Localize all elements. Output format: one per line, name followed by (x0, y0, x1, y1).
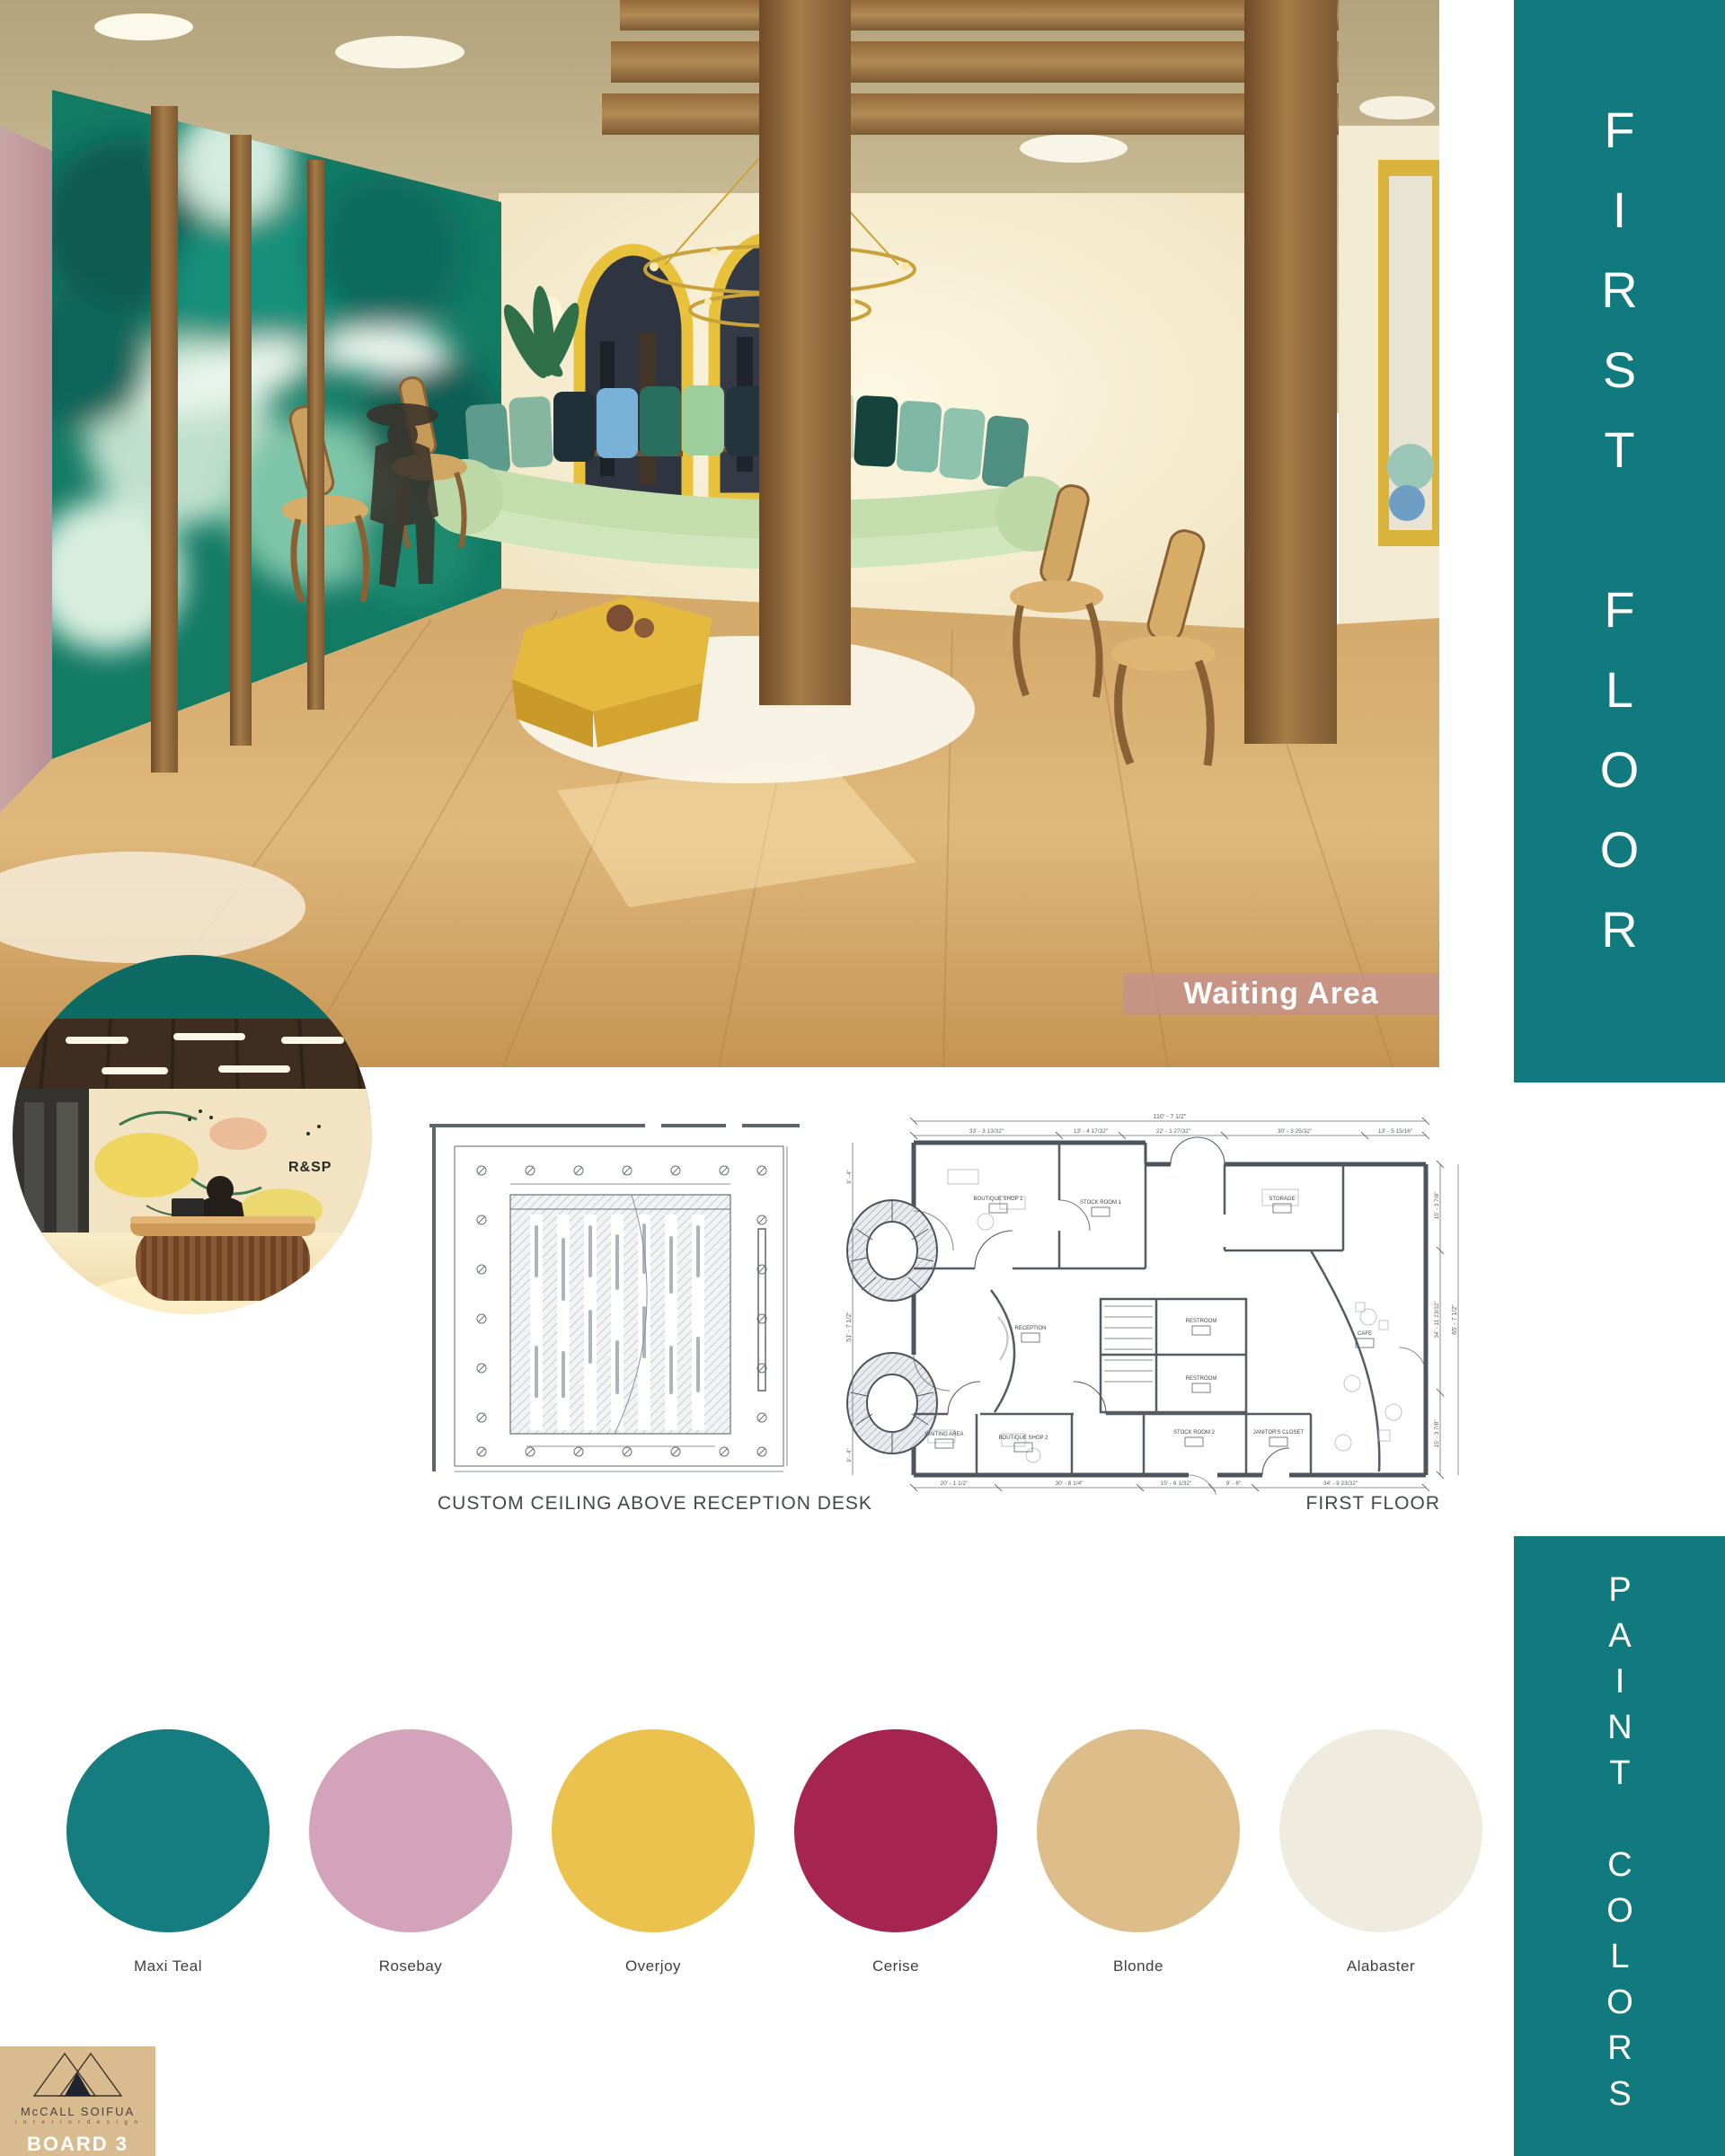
downlight-slash (526, 1167, 534, 1174)
dim-right-overall: 65' - 7 1/2" (1452, 1304, 1458, 1335)
firm-subtitle: i n t e r i o r d e s i g n (0, 2120, 155, 2125)
room-label: BOUTIQUE SHOP 1 (974, 1197, 1024, 1202)
ceiling-plan-drawing (429, 1121, 800, 1479)
reception-inset-photo: R&SP (12, 954, 373, 1315)
plan-doors (914, 1137, 1426, 1495)
dim-right-segment: 15' - 3 7/8" (1434, 1419, 1440, 1448)
room-number-box (1269, 1437, 1287, 1446)
room-number-box (1192, 1383, 1210, 1392)
room-label: CAFE (1358, 1331, 1372, 1337)
waiting-area-scene (0, 0, 1439, 1067)
downlight-slash (478, 1315, 485, 1322)
paint-swatch-rosebay: Rosebay (309, 1729, 512, 1975)
dim-left-small: 9' - 4" (847, 1170, 853, 1183)
room-label: JANITOR'S CLOSET (1253, 1430, 1305, 1436)
room-label: RESTROOM (1186, 1376, 1217, 1382)
paint-swatch-label: Alabaster (1279, 1957, 1482, 1975)
dim-top-segment: 13' - 5 15/16" (1378, 1128, 1413, 1135)
downlight-slash (575, 1448, 582, 1455)
pink-wall (0, 126, 52, 813)
paint-swatch-circle (1279, 1729, 1482, 1932)
gold-framed-mirror (1378, 160, 1439, 546)
banner-paint-colors-label: PAINT COLORS (1600, 1571, 1639, 2121)
downlight-slash (478, 1365, 485, 1372)
plan-dimension-labels: 110' - 7 1/2"33' - 3 13/32"13' - 4 17/32… (846, 1114, 1458, 1487)
downlight-slash (672, 1167, 679, 1174)
dim-right-segment: 15' - 3 7/8" (1434, 1191, 1440, 1220)
banner-first-floor: FIRST FLOOR (1514, 0, 1725, 1082)
room-label: STOCK ROOM 2 (1173, 1430, 1216, 1436)
board-number: BOARD 3 (0, 2133, 155, 2156)
downlight-slash (478, 1448, 485, 1455)
floor-plan-caption: FIRST FLOOR (1253, 1493, 1440, 1515)
paint-swatch-alabaster: Alabaster (1279, 1729, 1482, 1975)
room-number-box (1192, 1326, 1210, 1335)
room-label: BOUTIQUE SHOP 2 (999, 1436, 1049, 1441)
ceiling-plan-svg (429, 1121, 800, 1479)
mountain-logo-icon (0, 2046, 155, 2099)
room-number-box (1185, 1437, 1203, 1446)
downlight-slash (758, 1448, 765, 1455)
paint-swatch-maxi-teal: Maxi Teal (66, 1729, 270, 1975)
dim-top-segment: 13' - 4 17/32" (1074, 1128, 1109, 1135)
paint-swatch-blonde: Blonde (1037, 1729, 1240, 1975)
ceiling-light (335, 36, 464, 68)
room-label: RECEPTION (1014, 1326, 1046, 1331)
downlight-slash (758, 1266, 765, 1273)
ceiling-drawing-caption: CUSTOM CEILING ABOVE RECEPTION DESK (438, 1493, 872, 1515)
room-label: STORAGE (1269, 1197, 1295, 1202)
dim-bottom-segment: 30' - 8 1/4" (1055, 1480, 1084, 1487)
downlight-slash (721, 1167, 728, 1174)
paint-swatch-label: Cerise (794, 1957, 997, 1975)
downlight-slash (758, 1365, 765, 1372)
dim-bottom-segment: 15' - 6 1/32" (1161, 1480, 1192, 1487)
core-stairs (1104, 1306, 1153, 1382)
dim-bottom-segment: 34' - 9 23/32" (1323, 1480, 1358, 1487)
downlight-slash (624, 1167, 631, 1174)
paint-swatch-circle (309, 1729, 512, 1932)
paint-swatch-circle (794, 1729, 997, 1932)
first-floor-plan-drawing: 110' - 7 1/2"33' - 3 13/32"13' - 4 17/32… (840, 1114, 1496, 1495)
paint-swatch-label: Overjoy (552, 1957, 755, 1975)
room-number-box (1022, 1333, 1039, 1342)
ceiling-light (1020, 134, 1128, 163)
paint-swatch-circle (552, 1729, 755, 1932)
dim-left-small: 9' - 4" (847, 1448, 853, 1462)
dim-bottom-segment: 9' - 6" (1226, 1480, 1242, 1487)
banner-paint-colors: PAINT COLORS (1514, 1536, 1725, 2156)
downlight-slash (575, 1167, 582, 1174)
waiting-area-rendering: Waiting Area (0, 0, 1439, 1067)
reception-inset-scene: R&SP (12, 954, 373, 1315)
downlight-slash (758, 1414, 765, 1421)
arched-window (579, 250, 687, 503)
room-number-box (989, 1204, 1007, 1213)
downlight-slash (758, 1216, 765, 1224)
paint-swatch-label: Blonde (1037, 1957, 1240, 1975)
paint-swatch-label: Rosebay (309, 1957, 512, 1975)
downlight-slash (526, 1448, 534, 1455)
inset-reception-desk (130, 1216, 315, 1301)
wood-post (151, 106, 178, 773)
room-number-box (1014, 1443, 1032, 1452)
downlight-slash (478, 1216, 485, 1224)
room-number-box (935, 1439, 953, 1448)
downlight-slash (758, 1315, 765, 1322)
dim-bottom-segment: 20' - 1 1/2" (940, 1480, 969, 1487)
presentation-board: Waiting Area FIRST FLOOR PAINT COLORS (0, 0, 1725, 2156)
slat-ceiling (510, 1195, 730, 1434)
dim-top-segment: 33' - 3 13/32" (969, 1128, 1004, 1135)
dim-right-segment: 34' - 11 23/32" (1434, 1301, 1440, 1339)
downlight-slash (624, 1448, 631, 1455)
room-label: WAITING AREA (924, 1432, 963, 1437)
plan-outer-walls (914, 1143, 1426, 1475)
downlight-slash (478, 1414, 485, 1421)
paint-swatch-label: Maxi Teal (66, 1957, 270, 1975)
ceiling-light (1359, 96, 1435, 119)
ceiling-light (94, 13, 193, 40)
firm-logo-block: McCALL SOIFUA i n t e r i o r d e s i g … (0, 2046, 155, 2156)
room-label: RESTROOM (1186, 1319, 1217, 1324)
firm-name: McCALL SOIFUA (0, 2105, 155, 2118)
paint-swatch-overjoy: Overjoy (552, 1729, 755, 1975)
paint-swatch-circle (66, 1729, 270, 1932)
wood-post (307, 160, 324, 710)
wood-post (230, 135, 252, 746)
downlight-slash (478, 1266, 485, 1273)
downlight-slash (721, 1448, 728, 1455)
dim-top-segment: 22' - 1 27/32" (1156, 1128, 1191, 1135)
plan-interior-walls (914, 1143, 1379, 1475)
paint-swatch-cerise: Cerise (794, 1729, 997, 1975)
downlight-slash (758, 1167, 765, 1174)
dim-left-overall: 51' - 7 1/2" (846, 1312, 853, 1342)
inset-wall-logo: R&SP (288, 1160, 332, 1175)
stair-tower (847, 1353, 937, 1454)
room-label: STOCK ROOM 1 (1080, 1200, 1122, 1206)
room-number-box (1092, 1207, 1110, 1216)
floor-plan-svg: 110' - 7 1/2"33' - 3 13/32"13' - 4 17/32… (840, 1114, 1496, 1495)
paint-swatch-circle (1037, 1729, 1240, 1932)
rendering-caption-bar: Waiting Area (1123, 973, 1439, 1015)
downlight-slash (478, 1167, 485, 1174)
rendering-caption: Waiting Area (1183, 976, 1378, 1012)
plan-furniture (928, 1170, 1402, 1462)
downlight-slash (672, 1448, 679, 1455)
inset-teal-band (12, 954, 373, 1019)
banner-first-floor-label: FIRST FLOOR (1590, 102, 1649, 981)
stair-tower (847, 1200, 937, 1301)
dim-top-segment: 30' - 3 25/32" (1278, 1128, 1313, 1135)
dim-top-overall: 110' - 7 1/2" (1154, 1114, 1187, 1120)
